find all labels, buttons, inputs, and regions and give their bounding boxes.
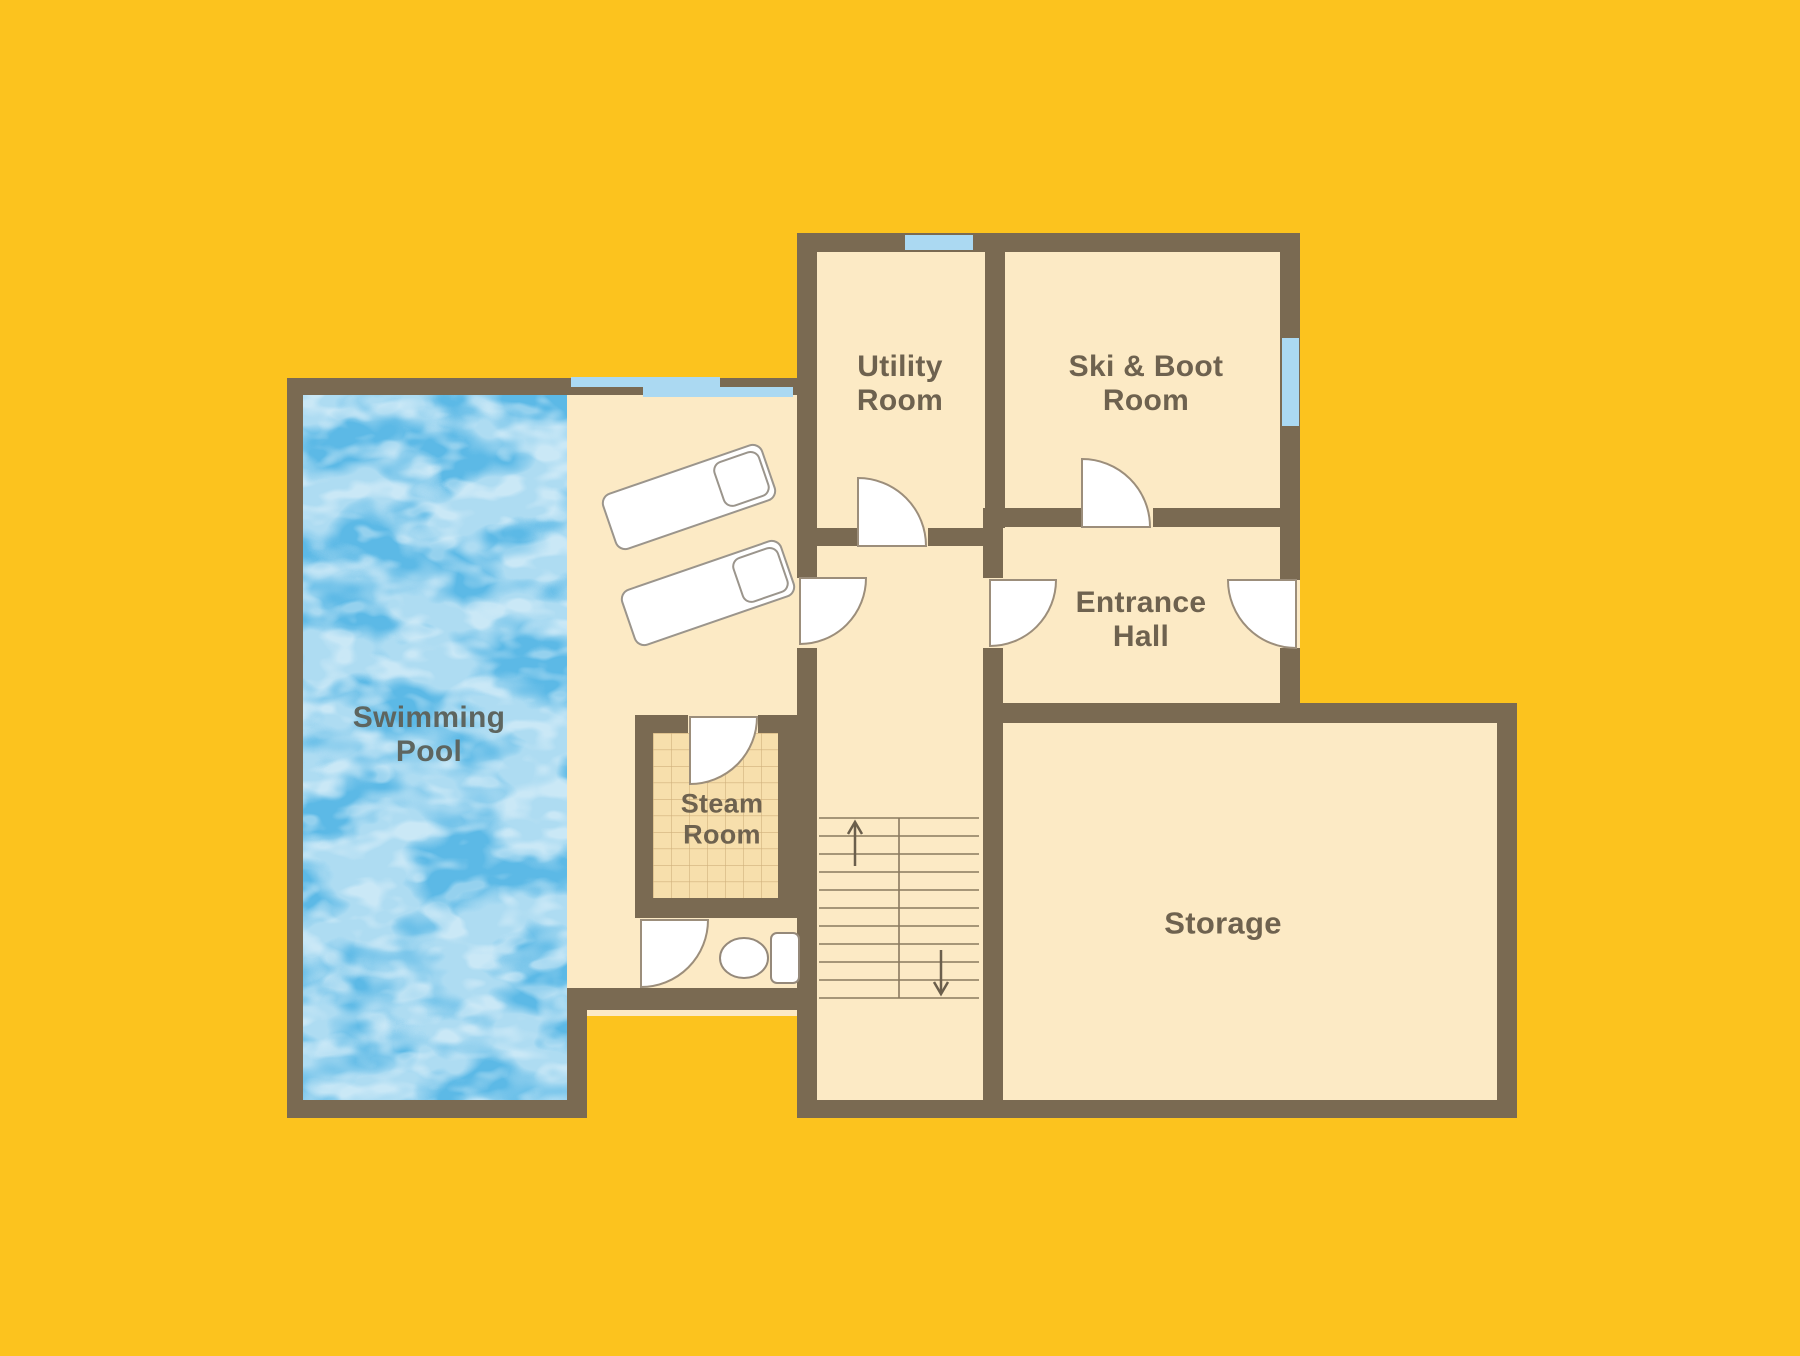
window-pool-deck-upper <box>571 377 720 387</box>
swimming-pool-label: Swimming Pool <box>353 701 505 769</box>
steam-room-label: Steam Room <box>681 789 764 850</box>
utility-room-label: Utility Room <box>857 350 943 418</box>
wall-steam-right <box>778 715 798 918</box>
steam-room-label-line1: Steam <box>681 789 764 820</box>
floor-plan-graphic <box>0 0 1800 1356</box>
wall-storage-top <box>983 703 1517 723</box>
ski-boot-room-label: Ski & Boot Room <box>1069 350 1224 418</box>
wall-steam-left <box>635 715 653 918</box>
toilet-cistern <box>771 933 799 983</box>
wall-top-block-top <box>797 233 1300 252</box>
entrance-hall-label-line1: Entrance <box>1076 586 1207 620</box>
wall-storage-bottom <box>797 1100 1517 1118</box>
wall-pool-left <box>287 378 303 1118</box>
wall-utility-bottom-left <box>797 528 858 546</box>
storage-label: Storage <box>1164 905 1282 940</box>
wall-storage-right <box>1497 703 1517 1118</box>
wall-deck-right-lower <box>797 648 817 1118</box>
window-pool-deck-lower <box>643 387 793 397</box>
entrance-hall-label-line2: Hall <box>1076 620 1207 654</box>
wall-steam-bottom <box>635 898 798 918</box>
wall-utility-skiboot-divider <box>985 233 1005 528</box>
entrance-hall-label: Entrance Hall <box>1076 586 1207 654</box>
utility-room-label-line2: Room <box>857 384 943 418</box>
toilet-bowl <box>720 938 768 978</box>
window-utility-room <box>905 235 973 250</box>
utility-room-label-line1: Utility <box>857 350 943 384</box>
window-ski-boot-room <box>1282 338 1299 426</box>
wall-hall-divider-upper <box>983 508 1003 578</box>
swimming-pool-label-line1: Swimming <box>353 701 505 735</box>
steam-room-label-line2: Room <box>681 819 764 850</box>
wall-deck-right-upper <box>797 233 817 578</box>
wall-entrance-right-upper <box>1280 527 1300 580</box>
storage-label-line1: Storage <box>1164 905 1282 940</box>
floor-plan-canvas: Swimming Pool Utility Room Ski & Boot Ro… <box>0 0 1800 1356</box>
wall-steam-top-left <box>635 715 688 733</box>
wall-pool-bottom <box>287 1100 587 1118</box>
wall-skiboot-bottom-left <box>1003 508 1082 527</box>
wall-skiboot-bottom-right <box>1153 508 1300 527</box>
swimming-pool-label-line2: Pool <box>353 735 505 769</box>
ski-boot-room-label-line2: Room <box>1069 384 1224 418</box>
ski-boot-room-label-line1: Ski & Boot <box>1069 350 1224 384</box>
wall-deck-bottom <box>567 988 817 1010</box>
